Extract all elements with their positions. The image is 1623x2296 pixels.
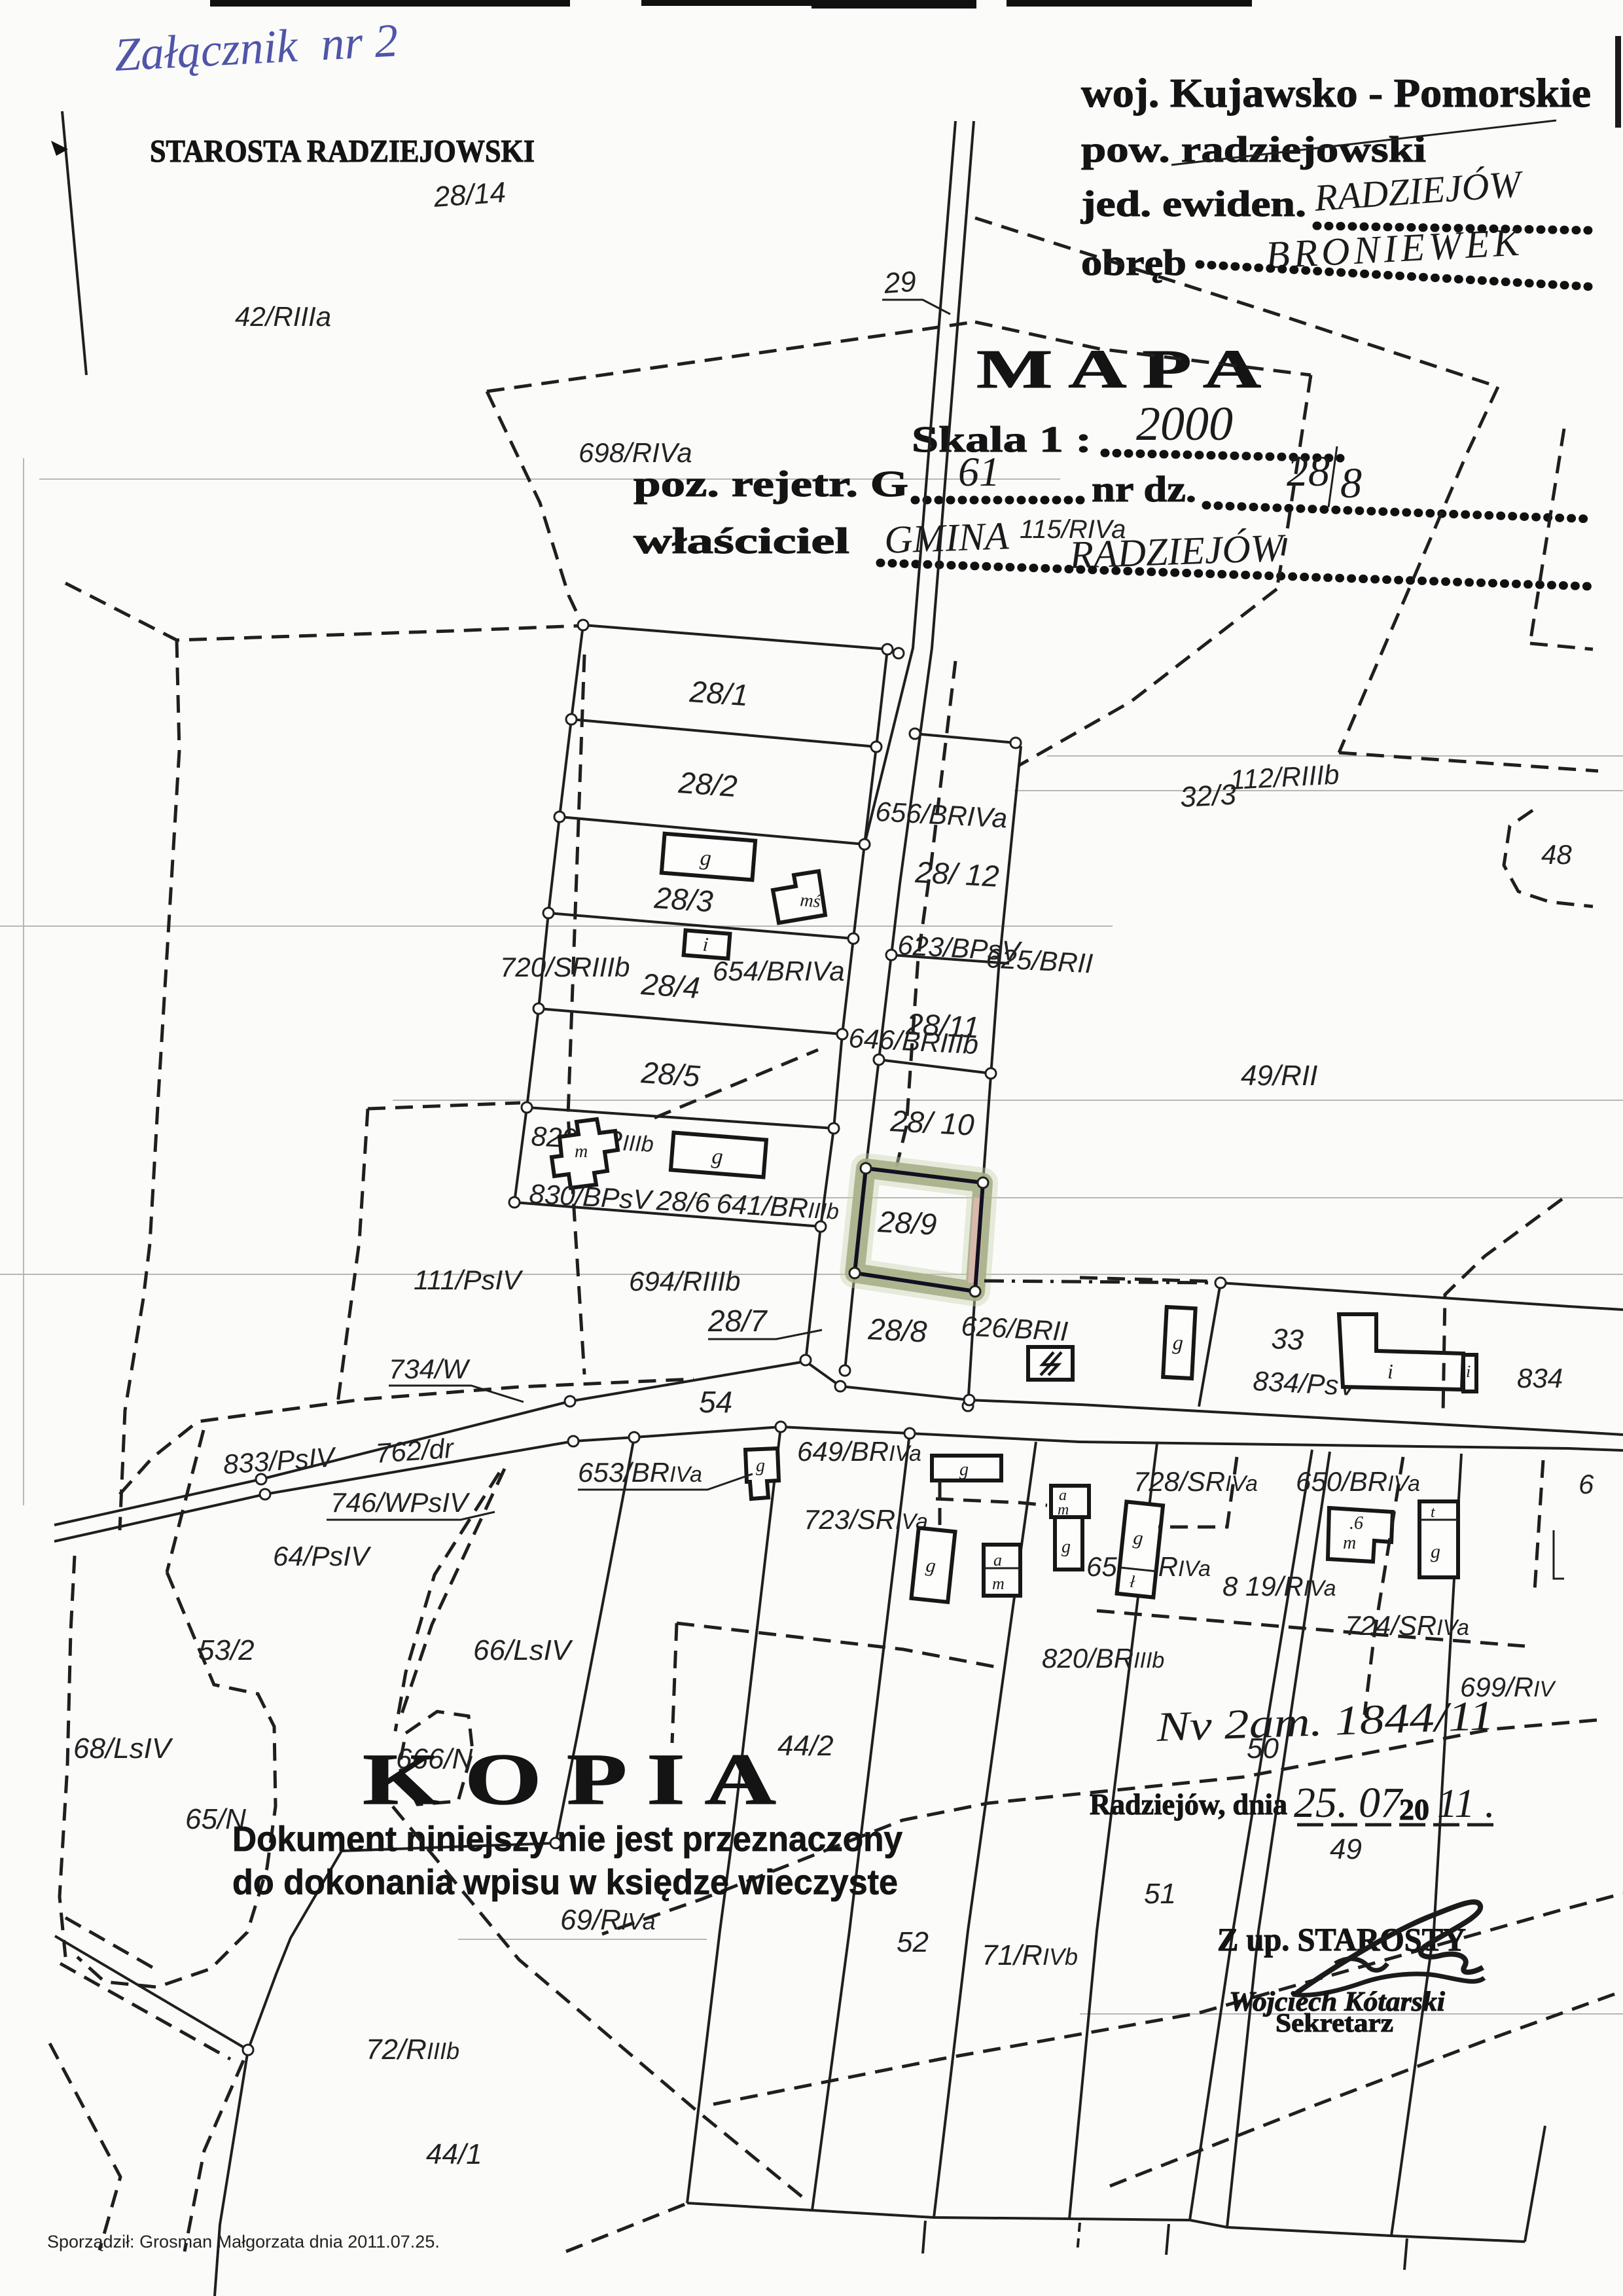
svg-text:72/RIIIb: 72/RIIIb — [366, 2034, 459, 2066]
svg-text:28/4: 28/4 — [639, 967, 701, 1005]
svg-text:28/5: 28/5 — [639, 1055, 701, 1093]
svg-text:28/8: 28/8 — [866, 1312, 928, 1349]
svg-text:111/PsIV: 111/PsIV — [414, 1265, 524, 1295]
svg-text:Sporządził: Grosman Małgorzata: Sporządził: Grosman Małgorzata dnia 2011… — [47, 2232, 440, 2251]
svg-text:28/9: 28/9 — [876, 1204, 937, 1242]
svg-text:71/RIVb: 71/RIVb — [982, 1939, 1078, 1971]
svg-text:69/RIVa: 69/RIVa — [560, 1904, 656, 1936]
svg-text:32/3: 32/3 — [1179, 779, 1238, 814]
svg-text:woj. Kujawsko - Pomorskie: woj. Kujawsko - Pomorskie — [1081, 71, 1591, 116]
svg-text:28/1: 28/1 — [688, 674, 749, 712]
svg-text:51: 51 — [1144, 1878, 1176, 1910]
svg-text:m: m — [1343, 1533, 1356, 1553]
svg-text:Skala 1 :: Skala 1 : — [912, 420, 1092, 460]
svg-text:.6: .6 — [1349, 1513, 1363, 1534]
svg-text:625/BRII: 625/BRII — [986, 942, 1094, 979]
svg-text:698/RIVa: 698/RIVa — [579, 437, 692, 468]
svg-text:g: g — [711, 1144, 724, 1169]
svg-text:49/RII: 49/RII — [1241, 1060, 1317, 1092]
svg-text:m: m — [575, 1141, 588, 1162]
svg-text:obręb: obręb — [1081, 243, 1186, 283]
svg-text:28/ 10: 28/ 10 — [889, 1103, 975, 1142]
svg-text:mś: mś — [800, 890, 822, 912]
svg-text:Dokument niniejszy nie jest pr: Dokument niniejszy nie jest przeznaczony — [232, 1820, 902, 1859]
svg-text:poz. rejetr. G: poz. rejetr. G — [633, 464, 908, 505]
svg-text:820/BRIIIb: 820/BRIIIb — [1042, 1643, 1164, 1674]
svg-text:g: g — [959, 1460, 969, 1480]
svg-text:Z up. STAROSTY: Z up. STAROSTY — [1217, 1921, 1466, 1958]
svg-text:42/RIIIa: 42/RIIIa — [235, 301, 331, 332]
svg-text:11 .: 11 . — [1437, 1782, 1495, 1826]
svg-text:6: 6 — [1578, 1469, 1594, 1499]
svg-text:2000: 2000 — [1136, 397, 1233, 451]
svg-text:653/BRIVa: 653/BRIVa — [578, 1457, 702, 1488]
svg-text:Sekretarz: Sekretarz — [1275, 2008, 1393, 2037]
svg-text:53/2: 53/2 — [198, 1634, 255, 1666]
svg-text:64/PsIV: 64/PsIV — [273, 1541, 372, 1571]
svg-text:g: g — [1061, 1537, 1071, 1557]
svg-text:25. 07: 25. 07 — [1294, 1779, 1404, 1827]
svg-text:49: 49 — [1330, 1833, 1362, 1865]
svg-text:29: 29 — [882, 266, 917, 300]
svg-text:626/BRII: 626/BRII — [961, 1310, 1069, 1347]
svg-text:28/7: 28/7 — [707, 1304, 768, 1338]
svg-text:pow. radziejowski: pow. radziejowski — [1081, 130, 1426, 170]
svg-text:nr dz.: nr dz. — [1092, 469, 1196, 510]
svg-text:g: g — [756, 1456, 765, 1476]
svg-text:654/BRIVa: 654/BRIVa — [713, 956, 845, 986]
svg-text:M A P A: M A P A — [976, 339, 1261, 400]
svg-text:28/3: 28/3 — [652, 880, 714, 918]
svg-text:Radziejów, dnia: Radziejów, dnia — [1090, 1787, 1287, 1821]
svg-text:8 19/RIVa: 8 19/RIVa — [1222, 1571, 1336, 1602]
svg-text:48: 48 — [1541, 839, 1572, 870]
svg-text:do dokonania wpisu w księdze w: do dokonania wpisu w księdze wieczyste — [232, 1863, 898, 1902]
svg-text:20: 20 — [1399, 1793, 1429, 1826]
svg-text:28/14: 28/14 — [432, 176, 507, 213]
svg-text:54: 54 — [699, 1385, 732, 1419]
svg-text:jed. ewiden.: jed. ewiden. — [1080, 184, 1306, 224]
svg-text:33: 33 — [1270, 1323, 1304, 1357]
svg-text:694/RIIIb: 694/RIIIb — [629, 1266, 740, 1297]
svg-text:66/LsIV: 66/LsIV — [473, 1634, 573, 1666]
svg-text:8: 8 — [1340, 459, 1362, 507]
svg-text:44/2: 44/2 — [777, 1730, 834, 1762]
svg-text:723/SRIVa: 723/SRIVa — [804, 1504, 928, 1535]
svg-text:i: i — [1466, 1362, 1471, 1381]
svg-text:68/LsIV: 68/LsIV — [73, 1732, 173, 1765]
svg-text:GMINA: GMINA — [883, 514, 1009, 562]
svg-text:61: 61 — [958, 448, 1000, 495]
svg-text:właściciel: właściciel — [633, 521, 849, 562]
svg-text:m: m — [992, 1574, 1005, 1593]
svg-text:724/SRIVa: 724/SRIVa — [1345, 1610, 1469, 1641]
svg-text:STAROSTA RADZIEJOWSKI: STAROSTA RADZIEJOWSKI — [150, 133, 535, 169]
svg-text:28/2: 28/2 — [677, 765, 738, 803]
svg-text:a: a — [993, 1551, 1002, 1570]
svg-text:g: g — [1431, 1541, 1440, 1562]
svg-text:44/1: 44/1 — [426, 2138, 482, 2170]
svg-text:g: g — [699, 846, 712, 870]
svg-text:649/BRIVa: 649/BRIVa — [797, 1436, 921, 1467]
svg-text:K O P I A: K O P I A — [363, 1739, 776, 1820]
svg-text:728/SRIVa: 728/SRIVa — [1133, 1466, 1258, 1497]
svg-text:746/WPsIV: 746/WPsIV — [330, 1487, 471, 1518]
svg-text:720/SRIIIb: 720/SRIIIb — [500, 952, 630, 982]
svg-text:112/RIIIb: 112/RIIIb — [1229, 759, 1340, 795]
svg-text:52: 52 — [897, 1926, 929, 1958]
svg-text:734/W: 734/W — [389, 1354, 471, 1384]
svg-text:g: g — [1172, 1330, 1184, 1354]
svg-text:834: 834 — [1517, 1363, 1563, 1393]
svg-text:50: 50 — [1247, 1732, 1279, 1765]
svg-text:762/dr: 762/dr — [374, 1433, 455, 1469]
svg-text:i: i — [1387, 1359, 1393, 1383]
